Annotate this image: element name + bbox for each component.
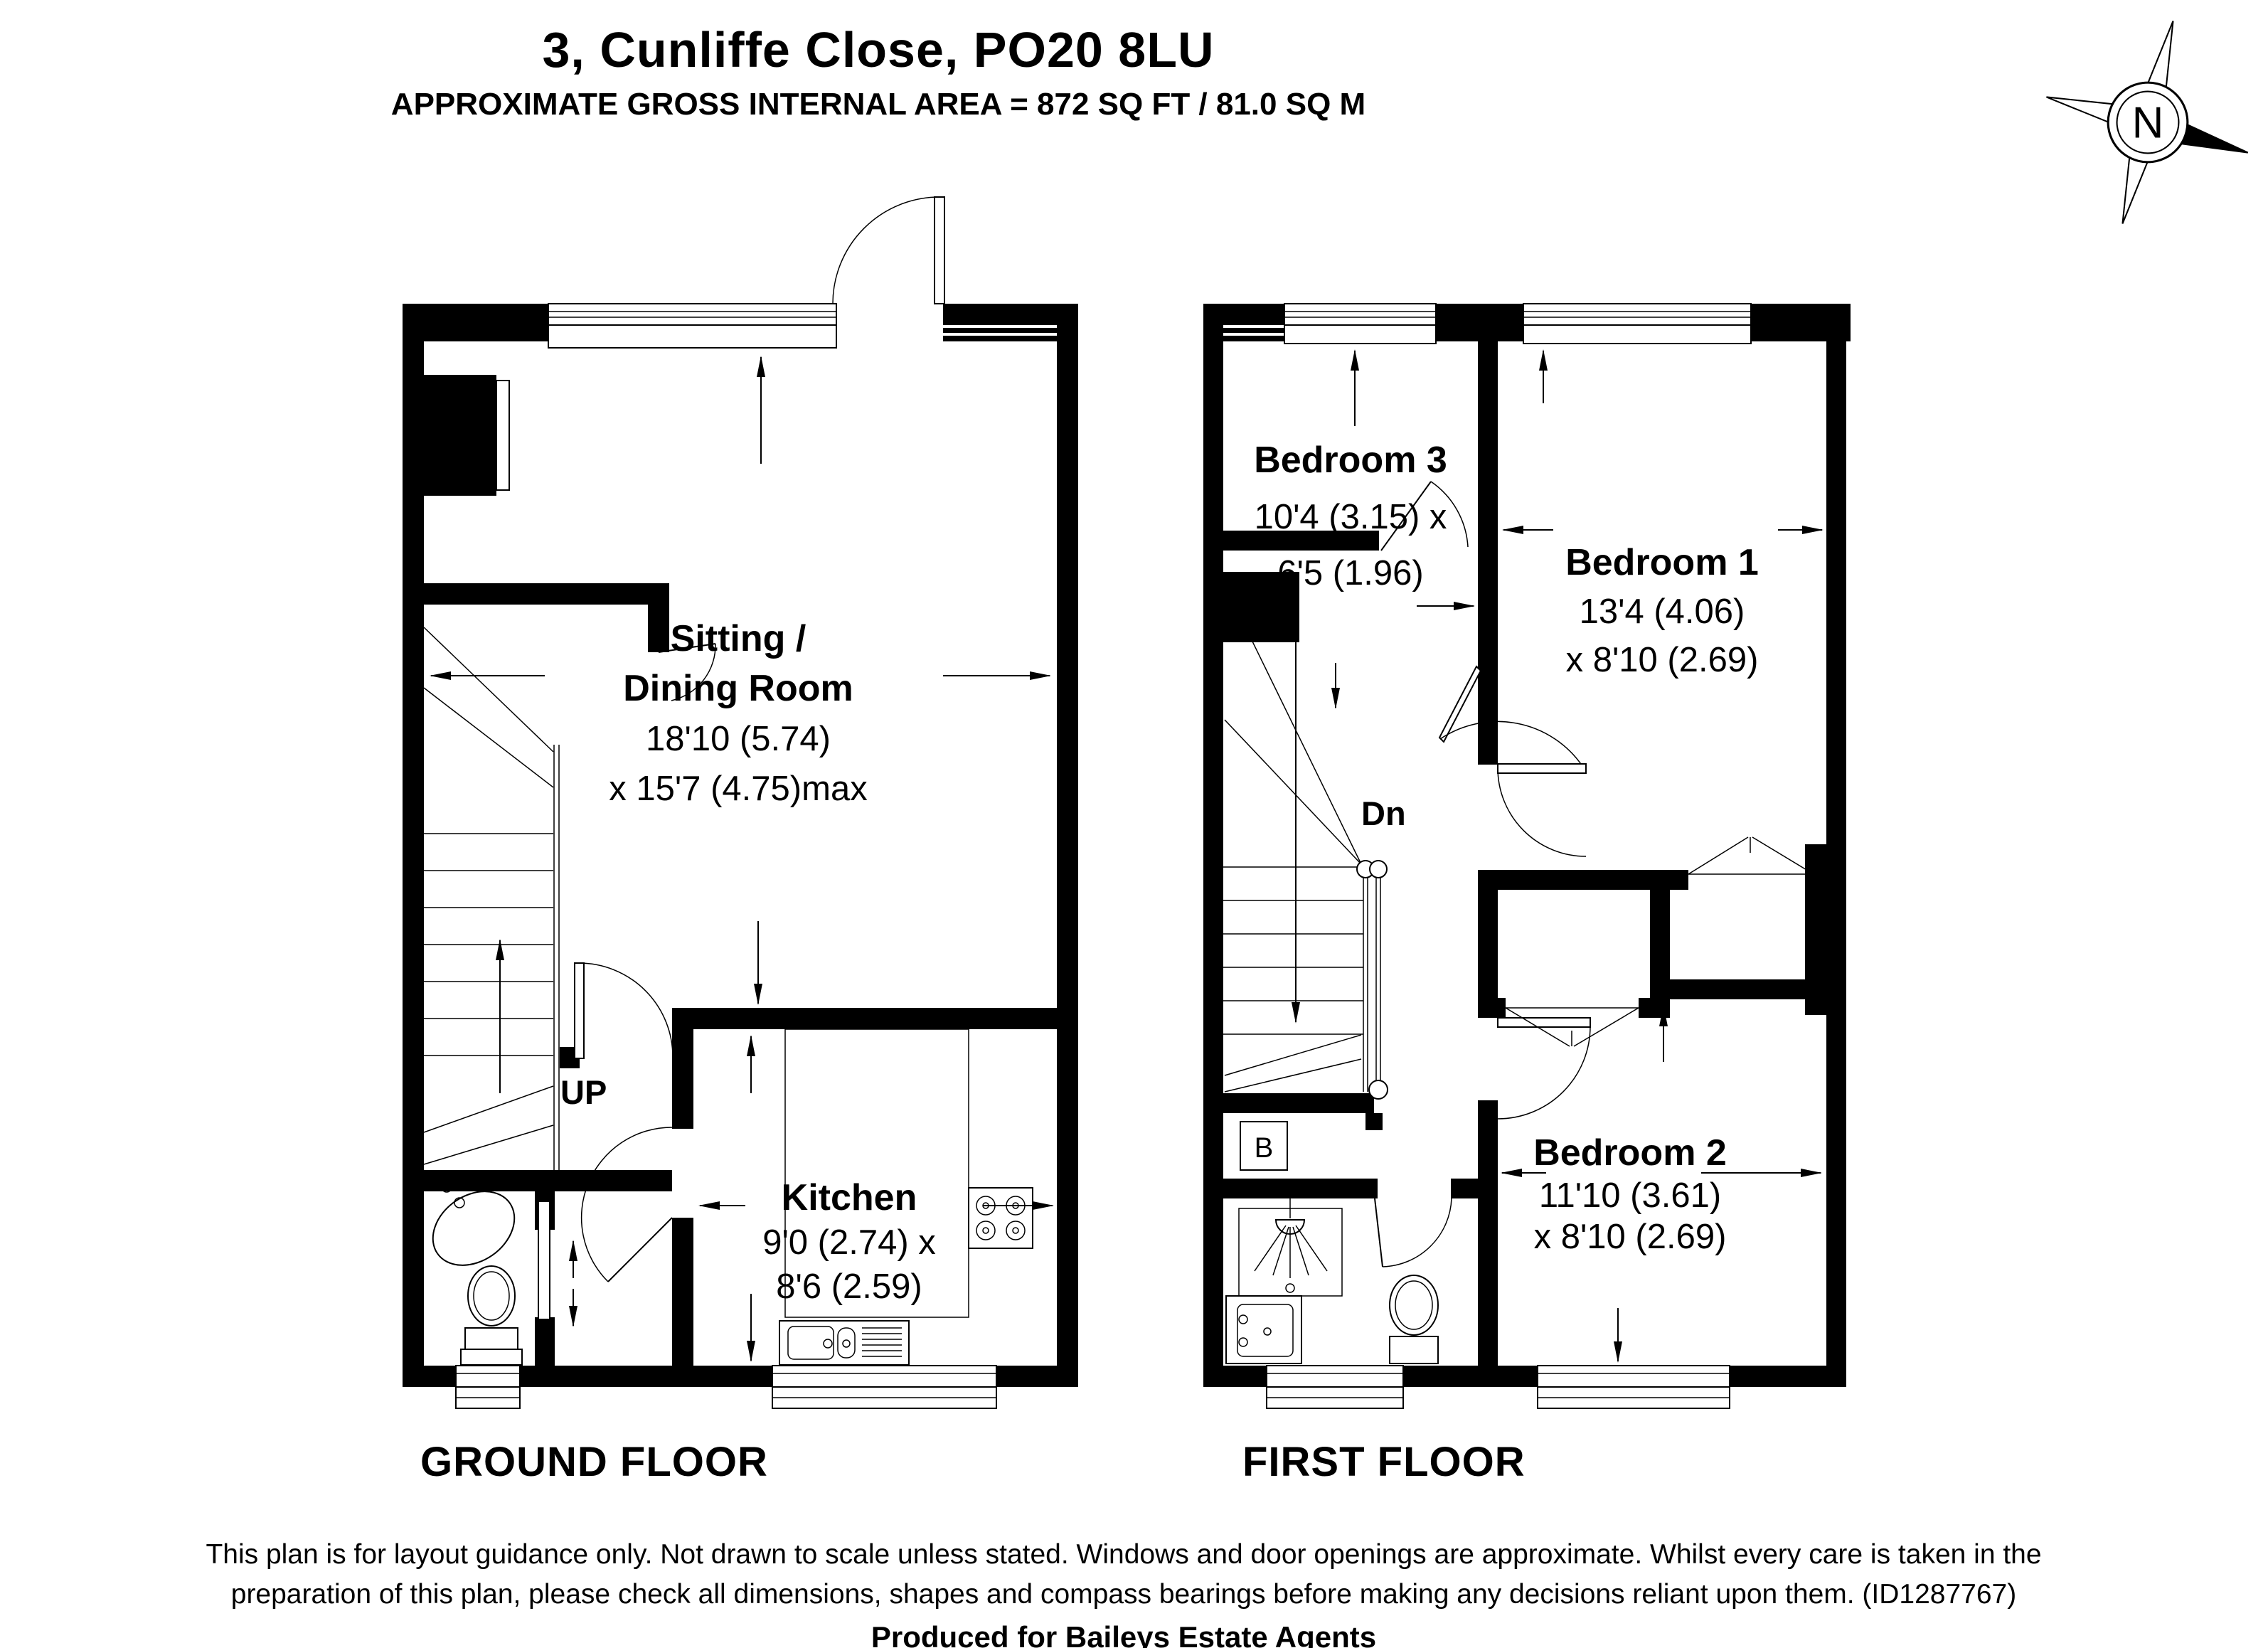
bathroom-basin [1226, 1296, 1301, 1363]
bedroom2-dim2: x 8'10 (2.69) [1534, 1218, 1727, 1256]
kitchen-name: Kitchen [782, 1177, 917, 1218]
page-title: 3, Cunliffe Close, PO20 8LU [0, 21, 1757, 78]
boiler-label: B [1255, 1132, 1274, 1164]
chimney-breast [424, 375, 496, 496]
sitting-room-name-line1: Sitting / [671, 618, 806, 659]
ground-room-labels: Sitting / Dining Room 18'10 (5.74) x 15'… [609, 618, 936, 1306]
kitchen-dim2: 8'6 (2.59) [776, 1267, 922, 1306]
kitchen-window [772, 1366, 996, 1408]
bedroom3-dim1: 10'4 (3.15) x [1255, 498, 1447, 536]
bedroom1-wardrobe-bifold-door [1688, 837, 1814, 874]
disclaimer-text: This plan is for layout guidance only. N… [199, 1535, 2048, 1615]
bedroom1-dim1: 13'4 (4.06) [1580, 592, 1745, 631]
compass-icon: N [2041, 16, 2254, 229]
kitchen-sink [779, 1321, 909, 1365]
bathroom-window [1267, 1366, 1403, 1408]
bedroom1-window [1523, 304, 1751, 344]
bedroom3-name: Bedroom 3 [1254, 440, 1447, 481]
ground-stairs: UP [422, 627, 607, 1170]
compass-letter: N [2132, 99, 2164, 148]
kitchen-door [582, 1127, 672, 1282]
wc-fixtures [419, 1175, 528, 1365]
ground-floor-plan: UP [403, 90, 1078, 1413]
bedroom2-dim1: 11'10 (3.61) [1539, 1176, 1721, 1215]
sitting-room-door [575, 963, 673, 1058]
sitting-room-dim2: x 15'7 (4.75)max [609, 770, 867, 808]
floorplan-page: 3, Cunliffe Close, PO20 8LU APPROXIMATE … [0, 0, 2268, 1648]
bathroom-door [1375, 1198, 1452, 1267]
ground-walls [403, 304, 1078, 1387]
stairs-up-label: UP [560, 1073, 607, 1111]
shower [1239, 1198, 1342, 1296]
boiler-cupboard: B [1240, 1122, 1287, 1170]
ground-floor-label: GROUND FLOOR [420, 1438, 768, 1486]
first-room-labels: Bedroom 3 10'4 (3.15) x 6'5 (1.96) Bedro… [1254, 440, 1759, 1256]
bedroom3-window [1284, 304, 1436, 344]
stairs-down-label: Dn [1361, 794, 1406, 832]
kitchen-hob [969, 1188, 1033, 1248]
bathroom-toilet [1390, 1275, 1438, 1363]
wc-sliding-door [538, 1201, 573, 1326]
kitchen-dim1: 9'0 (2.74) x [762, 1223, 936, 1262]
first-floor-label: FIRST FLOOR [1242, 1438, 1526, 1486]
bedroom2-window [1538, 1366, 1730, 1408]
produced-for-text: Produced for Baileys Estate Agents [199, 1620, 2048, 1648]
sitting-room-window [548, 304, 836, 348]
front-door [833, 197, 944, 304]
sitting-room-name-line2: Dining Room [623, 668, 853, 709]
bathroom-fixtures: B [1226, 1122, 1438, 1363]
first-floor-plan: Dn B [1203, 304, 1851, 1413]
wc-toilet [461, 1266, 522, 1365]
first-stairs: Dn [1223, 585, 1406, 1099]
bedroom1-door [1498, 764, 1586, 856]
bedroom1-name: Bedroom 1 [1565, 542, 1759, 583]
ground-doors [538, 197, 944, 1326]
landing-door [1439, 666, 1582, 766]
wc-basin [419, 1176, 528, 1280]
bedroom1-dim2: x 8'10 (2.69) [1566, 641, 1759, 679]
wc-window [456, 1366, 520, 1408]
sitting-room-dim1: 18'10 (5.74) [646, 720, 831, 758]
bedroom2-door [1498, 1018, 1590, 1119]
ground-dimension-arrows [431, 357, 1053, 1361]
bedroom2-name: Bedroom 2 [1533, 1132, 1727, 1174]
bedroom3-dim2: 6'5 (1.96) [1277, 554, 1423, 592]
